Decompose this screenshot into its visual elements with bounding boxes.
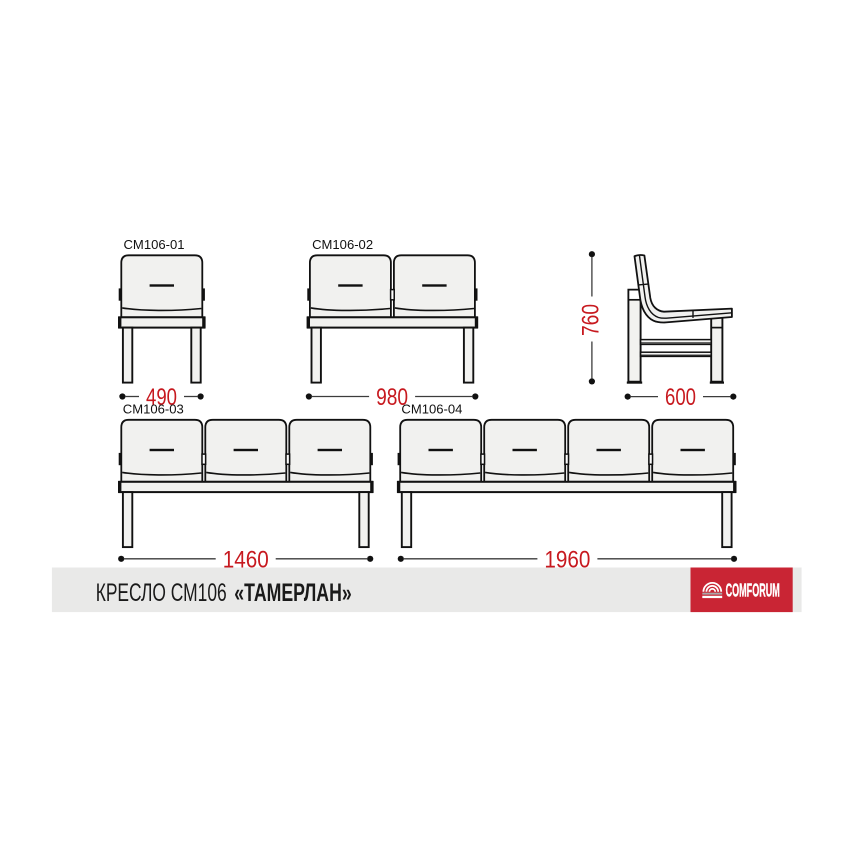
svg-text:«ТАМЕРЛАН»: «ТАМЕРЛАН» [234, 579, 351, 607]
svg-text:600: 600 [665, 384, 696, 411]
svg-text:760: 760 [578, 304, 605, 336]
svg-text:CM106-04: CM106-04 [401, 401, 462, 416]
svg-text:CM106-02: CM106-02 [312, 237, 373, 252]
svg-text:CM106-01: CM106-01 [124, 237, 185, 252]
svg-text:COMFORUM: COMFORUM [726, 580, 780, 600]
svg-text:КРЕСЛО СМ106: КРЕСЛО СМ106 [96, 579, 227, 607]
svg-text:CM106-03: CM106-03 [123, 401, 184, 416]
